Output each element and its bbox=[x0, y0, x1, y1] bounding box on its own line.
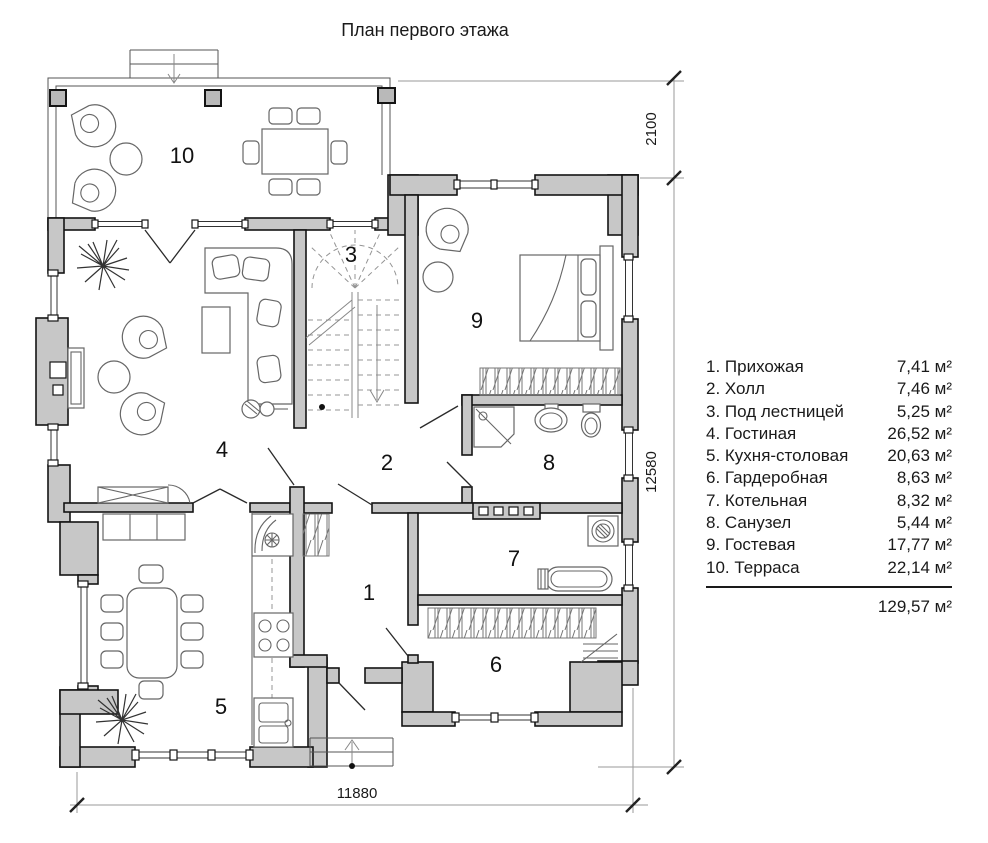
total-area: 129,57 м² bbox=[706, 597, 952, 617]
legend-row: 6. Гардеробная8,63 м² bbox=[706, 467, 952, 489]
dimension-terrace-depth: 2100 bbox=[643, 112, 660, 145]
legend-row: 3. Под лестницей5,25 м² bbox=[706, 401, 952, 423]
shower bbox=[474, 407, 514, 447]
room-name: 5. Кухня-столовая bbox=[706, 445, 848, 467]
room-name: 10. Терраса bbox=[706, 557, 800, 579]
legend-row: 8. Санузел5,44 м² bbox=[706, 512, 952, 534]
sideboard bbox=[103, 514, 185, 540]
dimension-height: 12580 bbox=[643, 451, 660, 493]
room-name: 1. Прихожая bbox=[706, 356, 804, 378]
armchair bbox=[419, 201, 479, 262]
plant bbox=[77, 240, 129, 290]
legend-divider bbox=[706, 586, 952, 588]
room-label-6: 6 bbox=[490, 652, 502, 677]
washbasin bbox=[535, 404, 567, 432]
room-label-1: 1 bbox=[363, 580, 375, 605]
terrace-column bbox=[378, 88, 395, 103]
radiator bbox=[473, 503, 540, 519]
armchair bbox=[115, 309, 175, 367]
dimension-width: 11880 bbox=[337, 785, 378, 802]
floor-plan-page: План первого этажа bbox=[0, 0, 988, 843]
room-name: 6. Гардеробная bbox=[706, 467, 828, 489]
terrace-round-table bbox=[110, 143, 142, 175]
terrace-column bbox=[205, 90, 221, 106]
room-name: 4. Гостиная bbox=[706, 423, 796, 445]
legend-row: 10. Терраса22,14 м² bbox=[706, 557, 952, 579]
legend: 1. Прихожая7,41 м² 2. Холл7,46 м² 3. Под… bbox=[706, 356, 952, 617]
dining-table-set bbox=[101, 565, 203, 699]
room-area: 5,44 м² bbox=[897, 512, 952, 534]
hood-fan bbox=[265, 533, 279, 547]
side-table bbox=[98, 361, 130, 393]
room-label-4: 4 bbox=[216, 437, 228, 462]
room-name: 7. Котельная bbox=[706, 490, 807, 512]
guest-room-furniture bbox=[419, 201, 620, 395]
terrace bbox=[48, 50, 395, 221]
tv-unit bbox=[68, 348, 84, 408]
legend-row: 1. Прихожая7,41 м² bbox=[706, 356, 952, 378]
room-area: 8,63 м² bbox=[897, 467, 952, 489]
room-label-7: 7 bbox=[508, 546, 520, 571]
legend-row: 9. Гостевая17,77 м² bbox=[706, 534, 952, 556]
room-name: 2. Холл bbox=[706, 378, 765, 400]
legend-row: 4. Гостиная26,52 м² bbox=[706, 423, 952, 445]
coffee-table bbox=[202, 307, 230, 353]
washing-machine bbox=[588, 516, 618, 546]
armchair bbox=[113, 384, 173, 442]
kitchen-furniture bbox=[96, 512, 293, 747]
living-room-furniture bbox=[68, 240, 292, 503]
bathroom-fixtures bbox=[474, 404, 601, 447]
wardrobe bbox=[428, 608, 596, 638]
terrace-column bbox=[50, 90, 66, 106]
room-area: 26,52 м² bbox=[887, 423, 952, 445]
stove bbox=[254, 613, 293, 657]
room-label-8: 8 bbox=[543, 450, 555, 475]
floor-lamp bbox=[260, 402, 274, 416]
room-label-5: 5 bbox=[215, 694, 227, 719]
stair-section-mark bbox=[319, 404, 325, 410]
boiler-room-fixtures bbox=[538, 516, 618, 591]
room-area: 5,25 м² bbox=[897, 401, 952, 423]
terrace-dining-set bbox=[243, 108, 347, 195]
room-area: 20,63 м² bbox=[887, 445, 952, 467]
chimney-flue bbox=[53, 385, 63, 395]
room-area: 17,77 м² bbox=[887, 534, 952, 556]
kitchen-sink bbox=[254, 698, 293, 747]
room-area: 8,32 м² bbox=[897, 490, 952, 512]
room-label-10: 10 bbox=[170, 143, 194, 168]
room-label-2: 2 bbox=[381, 450, 393, 475]
room-area: 22,14 м² bbox=[887, 557, 952, 579]
wardrobe bbox=[480, 368, 620, 395]
chimney-flue bbox=[50, 362, 66, 378]
room-name: 8. Санузел bbox=[706, 512, 791, 534]
legend-row: 5. Кухня-столовая20,63 м² bbox=[706, 445, 952, 467]
boiler-tank bbox=[538, 567, 612, 591]
room-name: 3. Под лестницей bbox=[706, 401, 844, 423]
bed bbox=[520, 255, 600, 341]
headboard bbox=[600, 246, 613, 350]
side-table bbox=[423, 262, 453, 292]
legend-row: 2. Холл7,46 м² bbox=[706, 378, 952, 400]
room-label-3: 3 bbox=[345, 242, 357, 267]
room-area: 7,46 м² bbox=[897, 378, 952, 400]
room-name: 9. Гостевая bbox=[706, 534, 795, 556]
legend-row: 7. Котельная8,32 м² bbox=[706, 490, 952, 512]
hall-closet bbox=[303, 514, 329, 556]
toilet bbox=[582, 404, 601, 437]
room-area: 7,41 м² bbox=[897, 356, 952, 378]
room-label-9: 9 bbox=[471, 308, 483, 333]
